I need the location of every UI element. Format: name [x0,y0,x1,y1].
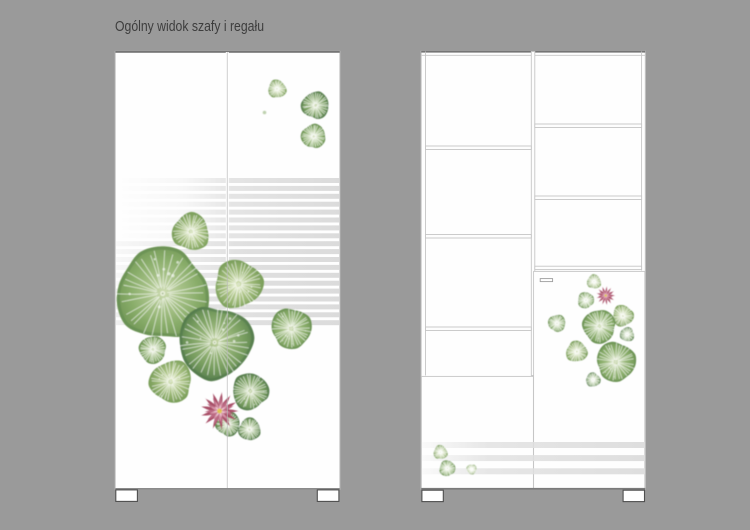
svg-text:Ogólny widok szafy i regału: Ogólny widok szafy i regału [115,19,264,35]
